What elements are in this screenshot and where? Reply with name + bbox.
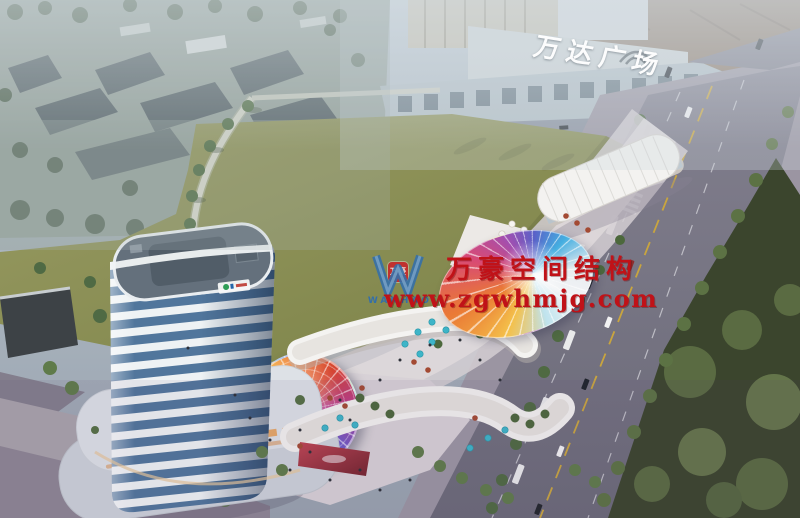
- rainbow-canopy: [427, 223, 607, 345]
- architectural-rendering: 万达广场 万豪 WANHAO 万豪空间结构 www.zgwhmjg.com: [0, 0, 800, 518]
